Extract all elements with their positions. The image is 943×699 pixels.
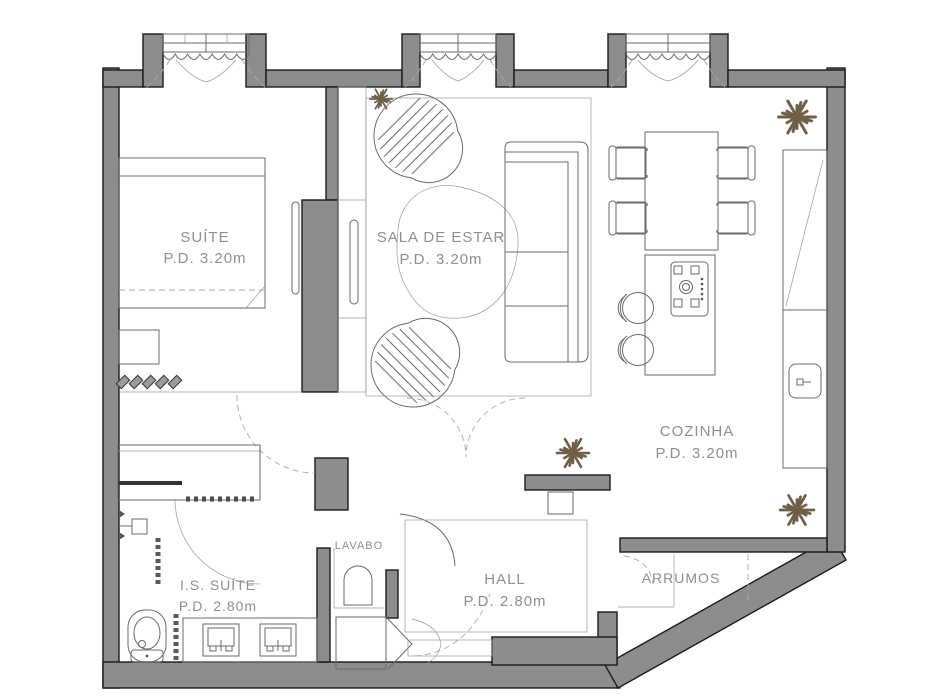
room-pd-suite: P.D. 3.20m (163, 250, 246, 267)
room-pd-hall: P.D. 2.80m (463, 593, 546, 610)
door-swing-icon (237, 395, 315, 473)
counter-icon (783, 150, 827, 468)
window-curtain-icon (405, 54, 511, 87)
cooktop-icon (671, 262, 708, 316)
plant-icon (557, 439, 589, 467)
window-curtain-icon (611, 54, 725, 87)
room-label-cozinha: COZINHA (660, 423, 735, 440)
vanity-icon (183, 618, 317, 662)
wardrobe-icon (338, 87, 366, 392)
window-sala (405, 34, 511, 87)
kitchen-island-icon (645, 255, 715, 375)
room-pd-sala: P.D. 3.20m (399, 251, 482, 268)
room-label-arrumos: ARRUMOS (642, 570, 721, 586)
floor-plan: SUÍTE P.D. 3.20m SALA DE ESTAR P.D. 3.20… (0, 0, 943, 699)
room-label-lavabo: LAVABO (335, 540, 383, 552)
washbasin-icon (344, 566, 372, 605)
toilet-icon (128, 610, 166, 662)
door-swing-icon (400, 514, 455, 566)
plant-icon (779, 101, 816, 133)
kitchen-sink-icon (789, 364, 821, 398)
window-frame-icon (626, 34, 710, 52)
chair-icon (609, 201, 647, 235)
room-pd-is-suite: P.D. 2.80m (179, 598, 257, 614)
room-hall: HALL P.D. 2.80m (405, 492, 587, 656)
closet-bifold-icon (336, 617, 441, 669)
stool-icon (618, 293, 653, 324)
vanity-sink-icon (203, 624, 239, 656)
bench-icon (119, 330, 159, 364)
sofa-icon (505, 142, 588, 362)
chair-icon (609, 146, 647, 180)
console-icon (548, 492, 573, 514)
shower-icon (118, 445, 260, 584)
room-cozinha: COZINHA P.D. 3.20m (609, 132, 827, 468)
window-frame-icon (420, 34, 496, 52)
tv-panel-icon (292, 202, 299, 294)
dining-table-icon (645, 132, 718, 250)
floor-plan-page: SUÍTE P.D. 3.20m SALA DE ESTAR P.D. 3.20… (0, 0, 943, 699)
chair-icon (717, 146, 755, 180)
tv-panel-icon (350, 220, 358, 304)
room-label-hall: HALL (484, 571, 526, 588)
chair-icon (717, 201, 755, 235)
door-swing-icon (466, 398, 525, 457)
plant-icon (780, 495, 814, 524)
room-pd-cozinha: P.D. 3.20m (655, 445, 738, 462)
room-sala: SALA DE ESTAR P.D. 3.20m (354, 77, 591, 457)
armchair-icon (354, 299, 480, 425)
room-suite: SUÍTE P.D. 3.20m (116, 158, 315, 473)
slippers-icon (116, 375, 181, 388)
room-is-suite: I.S. SUÍTE P.D. 2.80m (118, 445, 317, 662)
room-label-sala: SALA DE ESTAR (377, 229, 506, 246)
window-cozinha (611, 34, 725, 87)
vanity-sink-icon (260, 624, 296, 656)
room-label-suite: SUÍTE (180, 229, 229, 246)
plant-icon (370, 89, 392, 108)
room-label-is-suite: I.S. SUÍTE (180, 577, 256, 593)
window-frame-icon (163, 34, 249, 52)
stool-icon (618, 335, 653, 366)
